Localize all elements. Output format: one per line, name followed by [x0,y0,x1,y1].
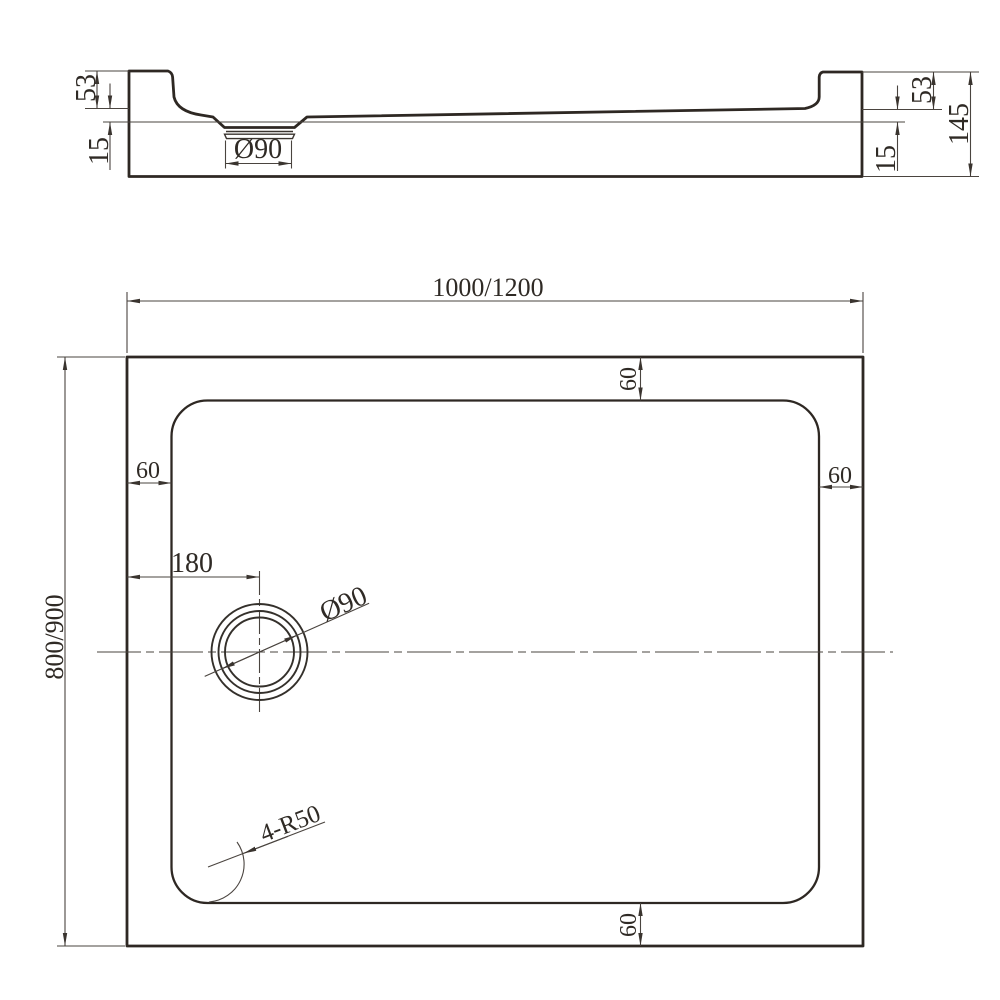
dim-label-rim-left: 60 [136,458,160,484]
dim-label-depth: 800/900 [40,594,69,679]
dim-label-rim-top: 60 [616,367,642,391]
dim-label-drain-offset: 180 [171,548,213,579]
dim-label-drain-plan: Ø90 [315,580,372,628]
dim-label-left-53: 53 [71,74,102,102]
dim-label-rim-right: 60 [828,463,852,489]
corner-radius-arc [209,842,244,902]
dim-label-145: 145 [944,103,975,145]
plan-view: 1000/1200 800/900 60 60 60 60 180 Ø90 4-… [40,273,893,946]
dim-label-right-15: 15 [871,145,902,173]
dim-label-drain-section: Ø90 [234,134,282,165]
shower-tray-drawing: 53 15 Ø90 53 15 145 [0,0,1000,1000]
dim-label-width: 1000/1200 [432,273,543,302]
dim-label-rim-bottom: 60 [616,913,642,937]
dim-label-right-53: 53 [907,76,938,104]
section-view: 53 15 Ø90 53 15 145 [71,71,979,177]
dim-label-corner-radius: 4-R50 [256,800,324,848]
technical-drawing-page: 53 15 Ø90 53 15 145 [0,0,1000,1000]
dim-label-left-15: 15 [84,137,115,165]
